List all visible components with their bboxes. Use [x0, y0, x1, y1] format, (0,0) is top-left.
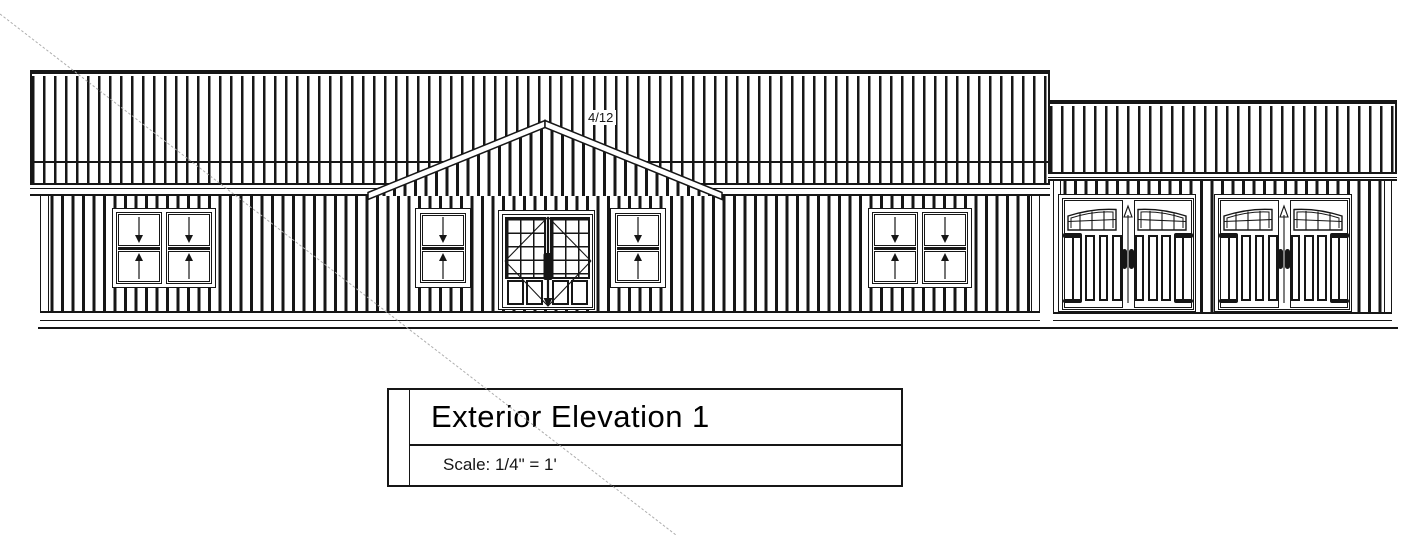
sash-arrow-up-icon	[937, 252, 953, 280]
window-sash-lower	[617, 251, 659, 282]
meeting-rail	[168, 247, 210, 250]
garage-door-up-arrow-icon	[1120, 203, 1136, 307]
garage-door-half-right	[1134, 200, 1193, 308]
garage-arch-window	[1135, 201, 1189, 233]
garage-door-panels	[1135, 235, 1192, 301]
garage-door-panel	[1174, 235, 1184, 301]
corner-board-right	[1031, 196, 1040, 311]
elevation-drawing-sheet: 4/12	[0, 0, 1420, 535]
window-sash-upper	[118, 214, 160, 246]
title-block: Exterior Elevation 1 Scale: 1/4" = 1'	[387, 388, 903, 487]
title-block-scale-row: Scale: 1/4" = 1'	[409, 446, 901, 485]
strap-hinge-icon	[1330, 233, 1349, 238]
double-hung-window	[872, 212, 918, 284]
rake-board-right	[545, 121, 722, 200]
window-single-left	[415, 208, 471, 288]
sash-arrow-down-icon	[131, 216, 147, 244]
garage-door-panels	[1065, 235, 1122, 301]
strap-hinge-icon	[1219, 299, 1238, 304]
window-sash-lower	[874, 251, 916, 283]
window-sash-lower	[168, 251, 210, 283]
window-sash-lower	[924, 251, 966, 283]
window-pair-left	[112, 208, 216, 288]
sash-arrow-down-icon	[937, 216, 953, 244]
strap-hinge-icon	[1219, 233, 1238, 238]
garage-door-panel	[1072, 235, 1082, 301]
double-hung-window	[116, 212, 162, 284]
garage-door-half-left	[1064, 200, 1123, 308]
double-hung-window	[922, 212, 968, 284]
window-sash-upper	[924, 214, 966, 246]
double-hung-window	[166, 212, 212, 284]
garage-door-panel	[1085, 235, 1095, 301]
garage-door-panel	[1330, 235, 1340, 301]
garage-door-1	[1058, 194, 1196, 312]
garage-door-half-left	[1220, 200, 1279, 308]
entry-door-leaves	[502, 214, 593, 308]
strap-hinge-icon	[1174, 299, 1193, 304]
sash-arrow-up-icon	[630, 252, 646, 280]
sash-arrow-up-icon	[435, 252, 451, 280]
window-sash-upper	[874, 214, 916, 246]
meeting-rail	[874, 247, 916, 250]
garage-door-face	[1062, 198, 1194, 310]
window-sash-upper	[422, 215, 464, 246]
garage-arch-window	[1221, 201, 1275, 233]
garage-door-panel	[1161, 235, 1171, 301]
garage-door-up-arrow-icon	[1276, 203, 1292, 307]
sash-arrow-down-icon	[887, 216, 903, 244]
meeting-rail	[617, 247, 659, 250]
strap-hinge-icon	[1063, 299, 1082, 304]
window-sash-lower	[118, 251, 160, 283]
garage-fascia	[1048, 172, 1397, 181]
garage-door-panels	[1291, 235, 1348, 301]
garage-door-panel	[1228, 235, 1238, 301]
garage-door-half-right	[1290, 200, 1349, 308]
window-sash-lower	[422, 251, 464, 282]
meeting-rail	[924, 247, 966, 250]
meeting-rail	[422, 247, 464, 250]
strap-hinge-icon	[1174, 233, 1193, 238]
sash-arrow-up-icon	[131, 252, 147, 280]
sash-arrow-up-icon	[887, 252, 903, 280]
door-swing-icon	[503, 215, 593, 308]
double-hung-window	[615, 213, 661, 283]
garage-arch-window	[1065, 201, 1119, 233]
meeting-rail	[118, 247, 160, 250]
garage-door-panel	[1148, 235, 1158, 301]
garage-door-panel	[1317, 235, 1327, 301]
garage-door-2	[1214, 194, 1352, 312]
window-single-right	[610, 208, 666, 288]
title-block-side-column	[389, 390, 410, 485]
sash-arrow-down-icon	[630, 216, 646, 244]
drawing-scale: Scale: 1/4" = 1'	[409, 455, 557, 475]
sash-arrow-up-icon	[181, 252, 197, 280]
strap-hinge-icon	[1063, 233, 1082, 238]
garage-door-panel	[1304, 235, 1314, 301]
strap-hinge-icon	[1330, 299, 1349, 304]
sash-arrow-down-icon	[435, 216, 451, 244]
window-sash-upper	[617, 215, 659, 246]
garage-door-panel	[1099, 235, 1109, 301]
window-pair-right	[868, 208, 972, 288]
window-sash-upper	[168, 214, 210, 246]
garage-corner-board-right	[1384, 181, 1392, 312]
roof-pitch-label: 4/12	[585, 110, 616, 125]
garage-arch-window	[1291, 201, 1345, 233]
entry-door	[498, 210, 595, 310]
title-block-title-row: Exterior Elevation 1	[409, 390, 901, 444]
garage-door-panel	[1241, 235, 1251, 301]
garage-base-trim	[1053, 312, 1392, 321]
garage-door-panel	[1255, 235, 1265, 301]
garage-roof	[1048, 100, 1397, 172]
main-base-trim	[40, 311, 1040, 321]
garage-door-face	[1218, 198, 1350, 310]
corner-board-left	[40, 196, 49, 311]
rake-board-left	[368, 121, 545, 200]
ground-line	[38, 327, 1398, 329]
sash-arrow-down-icon	[181, 216, 197, 244]
drawing-title: Exterior Elevation 1	[409, 399, 710, 435]
gable-rake-boards	[358, 114, 730, 204]
double-hung-window	[420, 213, 466, 283]
garage-door-panels	[1221, 235, 1278, 301]
